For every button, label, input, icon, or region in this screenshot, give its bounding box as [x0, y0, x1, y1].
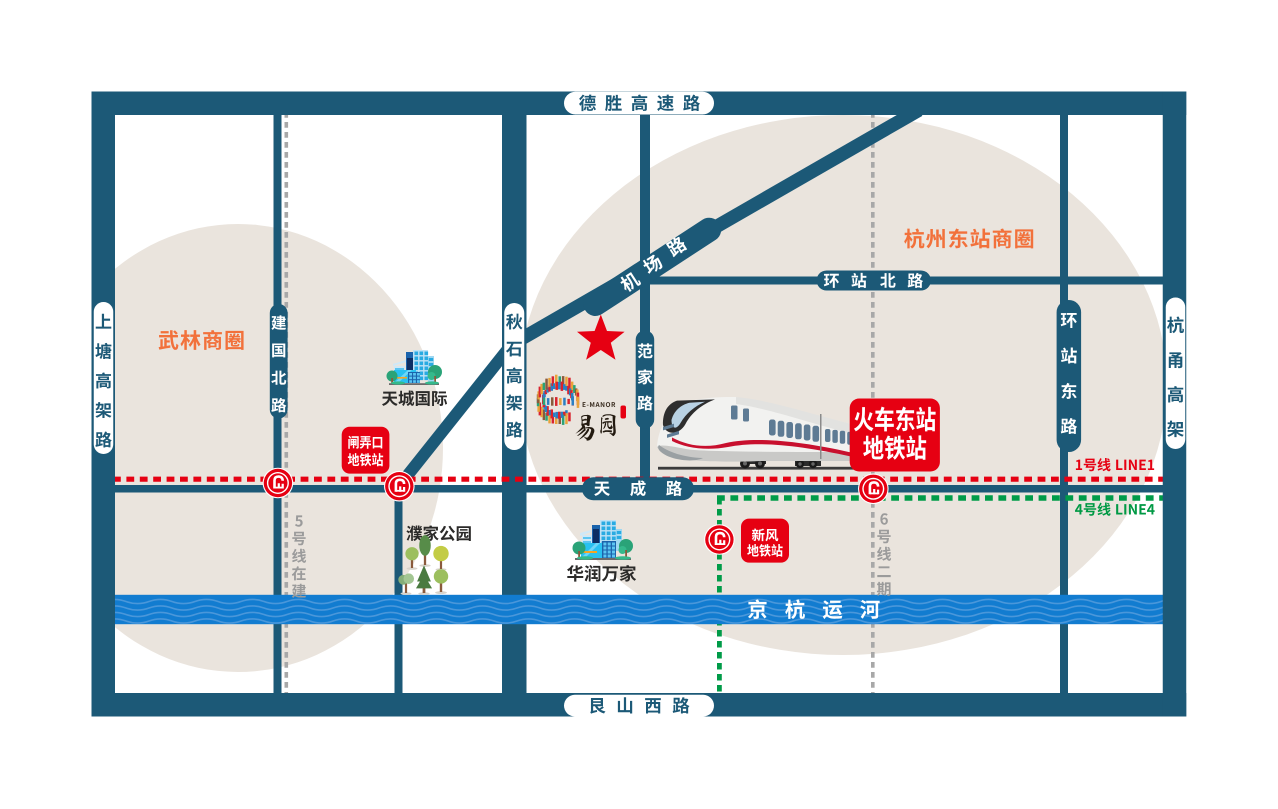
svg-text:山: 山 [616, 693, 634, 718]
svg-text:环: 环 [823, 268, 839, 292]
svg-text:天: 天 [594, 476, 611, 500]
svg-text:秋: 秋 [506, 308, 523, 333]
svg-text:华润万家: 华润万家 [567, 561, 637, 586]
svg-text:地铁站: 地铁站 [348, 450, 384, 470]
svg-text:地铁站: 地铁站 [747, 540, 783, 560]
svg-text:甬: 甬 [1167, 347, 1185, 372]
svg-text:站: 站 [851, 268, 867, 292]
svg-text:范: 范 [637, 338, 653, 362]
svg-text:路: 路 [95, 426, 112, 451]
svg-text:路: 路 [506, 416, 523, 441]
svg-text:建: 建 [291, 580, 306, 601]
svg-text:德: 德 [579, 91, 597, 116]
svg-text:架: 架 [1167, 416, 1185, 441]
svg-text:架: 架 [95, 397, 112, 422]
svg-text:北: 北 [271, 367, 287, 389]
svg-text:高: 高 [1167, 382, 1185, 407]
svg-text:速: 速 [657, 91, 675, 116]
svg-text:塘: 塘 [95, 338, 112, 363]
svg-text:1号线 LINE1: 1号线 LINE1 [1075, 455, 1155, 475]
svg-text:园: 园 [595, 412, 620, 437]
svg-text:家: 家 [637, 364, 653, 388]
svg-text:成: 成 [630, 476, 647, 500]
svg-text:天城国际: 天城国际 [382, 386, 449, 410]
svg-text:石: 石 [506, 335, 523, 360]
svg-text:西: 西 [644, 693, 662, 718]
svg-text:路: 路 [672, 693, 690, 718]
svg-text:杭州东站商圈: 杭州东站商圈 [904, 224, 1036, 254]
svg-text:高: 高 [506, 362, 523, 387]
svg-text:东: 东 [1060, 377, 1077, 402]
svg-text:濮家公园: 濮家公园 [406, 521, 472, 545]
svg-text:路: 路 [637, 390, 653, 414]
svg-text:路: 路 [1060, 413, 1077, 438]
svg-text:路: 路 [271, 394, 287, 416]
svg-text:国: 国 [271, 339, 287, 361]
svg-text:4号线 LINE4: 4号线 LINE4 [1075, 500, 1155, 520]
svg-text:高: 高 [631, 91, 649, 116]
svg-text:杭: 杭 [1167, 312, 1185, 337]
svg-text:地铁站: 地铁站 [863, 429, 927, 466]
svg-text:杭: 杭 [785, 593, 806, 623]
svg-text:胜: 胜 [605, 91, 623, 116]
svg-text:路: 路 [683, 91, 701, 116]
svg-text:京: 京 [747, 593, 768, 623]
svg-text:河: 河 [860, 593, 881, 623]
svg-text:环: 环 [1060, 307, 1077, 332]
svg-text:E-MANOR: E-MANOR [582, 399, 616, 409]
svg-text:北: 北 [880, 268, 896, 292]
svg-text:艮: 艮 [588, 693, 606, 718]
svg-text:站: 站 [1060, 342, 1077, 367]
svg-text:上: 上 [95, 308, 112, 333]
svg-text:运: 运 [822, 593, 843, 623]
svg-text:武林商圈: 武林商圈 [158, 325, 246, 355]
svg-text:建: 建 [271, 312, 287, 334]
svg-text:高: 高 [95, 367, 112, 392]
svg-text:路: 路 [666, 476, 683, 500]
svg-text:架: 架 [506, 389, 523, 414]
svg-text:路: 路 [907, 268, 923, 292]
